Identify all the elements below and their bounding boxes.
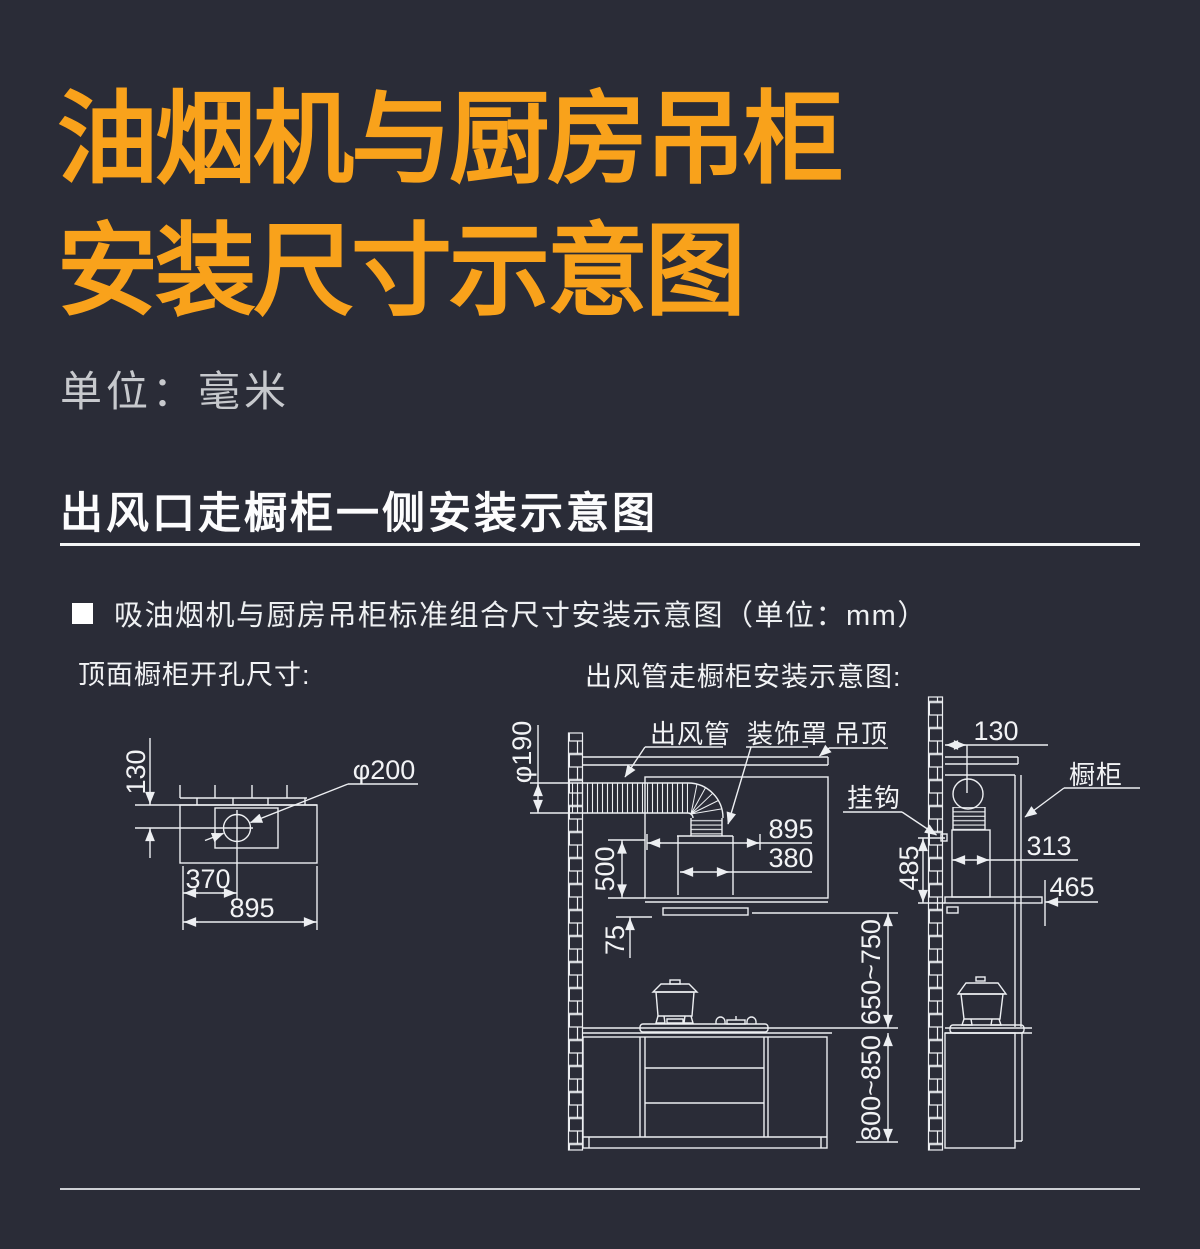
left-drawing-caption: 顶面橱柜开孔尺寸: xyxy=(78,660,311,690)
page-title-line2: 安装尺寸示意图 xyxy=(57,222,743,323)
wall-side-view xyxy=(929,697,943,1150)
base-cabinet-panels xyxy=(640,1037,768,1137)
dim-counter-height: 800~850 xyxy=(856,1035,886,1141)
main-section-view xyxy=(530,725,898,1148)
bottom-separator xyxy=(60,1188,1140,1190)
ceiling-lines-side xyxy=(945,757,1018,764)
dim-hood-height: 500 xyxy=(590,846,620,891)
rail-dividers xyxy=(197,798,305,805)
dim-cutout-width: 895 xyxy=(229,893,274,923)
hood-foot xyxy=(947,907,958,913)
burner-bar xyxy=(727,1020,745,1024)
pot-stand xyxy=(656,1016,693,1023)
label-cabinet: 橱柜 xyxy=(1069,760,1123,790)
stove-platform-side xyxy=(950,1025,1024,1033)
dim-hole-diameter: φ200 xyxy=(353,755,416,785)
duct-ribs xyxy=(570,784,688,813)
chimney-cover xyxy=(677,836,733,895)
section-heading: 出风口走橱柜一侧安装示意图 xyxy=(60,479,658,541)
dim-wall-offset: 130 xyxy=(973,716,1018,746)
dim-hook-height: 485 xyxy=(894,845,924,890)
dim-hood-depth: 313 xyxy=(1026,831,1071,861)
base-cabinet-outline xyxy=(583,1037,827,1148)
dim-hood-width: 895 xyxy=(768,814,813,844)
dim-gap: 75 xyxy=(600,925,630,955)
countertop-side xyxy=(945,1028,1032,1033)
bullet-row: 吸油烟机与厨房吊柜标准组合尺寸安装示意图（单位：mm） xyxy=(72,592,928,634)
pot-lid xyxy=(653,984,697,992)
pot-body-side xyxy=(961,994,1003,1019)
collar-ribs-side xyxy=(953,807,985,830)
installation-diagram-page: 油烟机与厨房吊柜 安装尺寸示意图 单位：毫米 出风口走橱柜一侧安装示意图 吸油烟… xyxy=(0,0,1200,1249)
bullet-square-icon xyxy=(72,603,93,624)
right-drawing-caption: 出风管走橱柜安装示意图: xyxy=(585,662,902,692)
label-ceiling: 吊顶 xyxy=(834,719,888,749)
ceiling-lines xyxy=(583,757,828,765)
unit-note: 单位：毫米 xyxy=(60,358,290,419)
dim-bottom-depth: 465 xyxy=(1049,872,1094,902)
dim-hood-to-counter: 650~750 xyxy=(856,919,886,1025)
hood-bottom-side xyxy=(945,897,1042,903)
technical-drawing: 顶面橱柜开孔尺寸: xyxy=(0,640,1200,1249)
dim-depth-offset: 130 xyxy=(121,749,151,794)
base-kick xyxy=(583,1137,827,1148)
dim-chimney-width: 380 xyxy=(768,843,813,873)
pot-lid-side xyxy=(958,983,1006,994)
pot-stand-side xyxy=(962,1019,1001,1025)
label-hook: 挂钩 xyxy=(847,783,901,813)
rail-ticks xyxy=(180,785,287,798)
hood-bottom-lip xyxy=(663,908,748,915)
base-cabinet-side xyxy=(945,1033,1015,1148)
drawer-lines xyxy=(645,1068,764,1103)
hood-body-side xyxy=(952,830,990,897)
dim-duct-diameter: φ190 xyxy=(507,721,537,784)
dim-wall-offset-line xyxy=(945,745,1048,793)
base-cabinet-side-panel xyxy=(1015,1033,1022,1141)
duct-section-circle xyxy=(953,779,983,809)
pot-body xyxy=(656,992,694,1016)
label-cover: 装饰罩 xyxy=(747,719,828,749)
dim-hole-x: 370 xyxy=(185,864,230,894)
heading-underline xyxy=(60,543,1140,546)
page-title-line1: 油烟机与厨房吊柜 xyxy=(57,90,841,191)
bullet-text: 吸油烟机与厨房吊柜标准组合尺寸安装示意图（单位：mm） xyxy=(114,592,928,634)
duct-collar-ribs xyxy=(691,818,722,836)
label-duct: 出风管 xyxy=(650,719,731,749)
pot-knob-side xyxy=(976,977,985,981)
